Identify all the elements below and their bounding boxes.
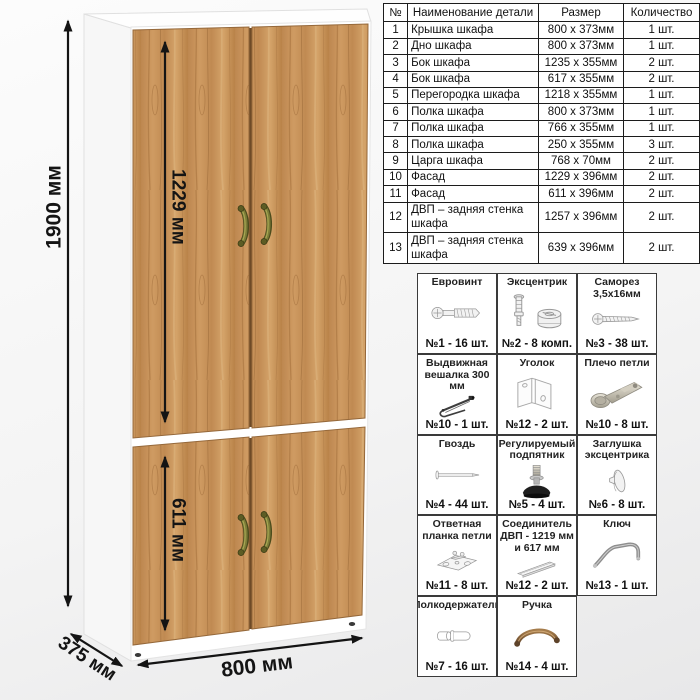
part-num: 1 (384, 22, 408, 38)
side-panel (84, 14, 131, 661)
part-name: Фасад (408, 186, 539, 202)
part-size: 800 х 373мм (538, 104, 623, 120)
table-row: 5Перегородка шкафа1218 х 355мм1 шт. (384, 87, 700, 103)
parts-table: № Наименование детали Размер Количество … (383, 3, 700, 264)
part-name: Бок шкафа (408, 71, 539, 87)
cam-lock-icon (501, 293, 573, 333)
hardware-cell-hinge-arm: Плечо петли №10 - 8 шт. (577, 354, 657, 435)
part-size: 1257 х 396мм (538, 202, 623, 233)
part-qty: 2 шт. (624, 169, 700, 185)
shelf-pin-icon (421, 624, 493, 648)
euro-screw-icon (421, 298, 493, 328)
hardware-qty: №12 - 2 шт. (506, 580, 569, 595)
hardware-qty: №10 - 8 шт. (586, 419, 649, 434)
nail-icon (421, 464, 493, 486)
part-size: 639 х 396мм (538, 233, 623, 264)
hardware-name: Регулируемый подпятник (497, 436, 577, 463)
part-qty: 1 шт. (624, 120, 700, 136)
part-num: 8 (384, 137, 408, 153)
hardware-cell-samorez: Саморез 3,5х16мм №3 - 38 шт. (577, 273, 657, 354)
part-name: Перегородка шкафа (408, 87, 539, 103)
table-row: 4Бок шкафа617 х 355мм2 шт. (384, 71, 700, 87)
hardware-qty: №5 - 4 шт. (509, 499, 565, 514)
part-num: 11 (384, 186, 408, 202)
part-num: 5 (384, 87, 408, 103)
part-size: 766 х 355мм (538, 120, 623, 136)
table-row: 2Дно шкафа800 х 373мм1 шт. (384, 38, 700, 54)
hardware-cell-shelf-pin: Полкодержатель №7 - 16 шт. (417, 596, 497, 677)
parts-table-header-row: № Наименование детали Размер Количество (384, 4, 700, 22)
hardware-name: Ручка (520, 597, 554, 612)
hardware-cell-eurovint: Евровинт №1 - 16 шт. (417, 273, 497, 354)
part-num: 9 (384, 153, 408, 169)
hardware-name: Плечо петли (582, 355, 651, 370)
hardware-cell-handle: Ручка №14 - 4 шт. (497, 596, 577, 677)
hardware-qty: №14 - 4 шт. (506, 661, 569, 676)
part-qty: 2 шт. (624, 55, 700, 71)
hardware-name: Полкодержатель (417, 597, 497, 612)
part-qty: 1 шт. (624, 104, 700, 120)
hardware-grid: Евровинт №1 - 16 шт. Эксцентрик (417, 273, 659, 677)
hardware-name: Выдвижная вешалка 300 мм (418, 355, 496, 393)
hardware-cell-excentric: Эксцентрик №2 - 8 комп. (497, 273, 577, 354)
col-header-size: Размер (538, 4, 623, 22)
assembly-sheet: 1900 мм 1229 мм 611 мм 800 мм 375 мм № Н… (0, 0, 700, 700)
hardware-qty: №7 - 16 шт. (426, 661, 489, 676)
hardware-qty: №4 - 44 шт. (426, 499, 489, 514)
hardware-qty: №11 - 8 шт. (426, 580, 488, 595)
part-name: ДВП – задняя стенка шкафа (408, 233, 539, 264)
hex-key-icon (581, 538, 653, 574)
part-name: Бок шкафа (408, 55, 539, 71)
part-name: Полка шкафа (408, 104, 539, 120)
front-left-foot (135, 653, 141, 657)
part-num: 3 (384, 55, 408, 71)
hinge-plate-icon (421, 545, 493, 579)
part-num: 13 (384, 233, 408, 264)
hinge-arm-icon (581, 375, 653, 413)
hardware-name: Саморез 3,5х16мм (578, 274, 656, 301)
col-header-qty: Количество (624, 4, 700, 22)
part-num: 7 (384, 120, 408, 136)
upper-left-door (133, 27, 249, 438)
self-tapping-screw-icon (581, 306, 653, 332)
table-row: 11Фасад611 х 396мм2 шт. (384, 186, 700, 202)
part-qty: 3 шт. (624, 137, 700, 153)
width-dimension-label: 800 мм (220, 650, 294, 682)
hardware-name: Гвоздь (437, 436, 478, 451)
part-qty: 1 шт. (624, 38, 700, 54)
table-row: 7Полка шкафа766 х 355мм1 шт. (384, 120, 700, 136)
lower-dimension-label: 611 мм (168, 498, 189, 562)
table-row: 3Бок шкафа1235 х 355мм2 шт. (384, 55, 700, 71)
part-size: 768 х 70мм (538, 153, 623, 169)
part-qty: 1 шт. (624, 87, 700, 103)
hardware-qty: №12 - 2 шт. (506, 419, 569, 434)
part-size: 617 х 355мм (538, 71, 623, 87)
part-qty: 2 шт. (624, 186, 700, 202)
hardware-cell-nail: Гвоздь №4 - 44 шт. (417, 435, 497, 516)
table-row: 8Полка шкафа250 х 355мм3 шт. (384, 137, 700, 153)
part-size: 1218 х 355мм (538, 87, 623, 103)
hardware-name: Ключ (601, 516, 633, 531)
table-row: 10Фасад1229 х 396мм2 шт. (384, 169, 700, 185)
front-right-foot (349, 622, 355, 626)
col-header-num: № (384, 4, 408, 22)
adjustable-foot-icon (501, 463, 573, 499)
part-qty: 2 шт. (624, 202, 700, 233)
table-row: 12ДВП – задняя стенка шкафа1257 х 396мм2… (384, 202, 700, 233)
hardware-name: Соединитель ДВП - 1219 мм и 617 мм (498, 516, 576, 554)
part-size: 250 х 355мм (538, 137, 623, 153)
part-size: 1235 х 355мм (538, 55, 623, 71)
part-qty: 1 шт. (624, 22, 700, 38)
hardware-cell-foot: Регулируемый подпятник №5 - 4 шт. (497, 435, 577, 516)
part-num: 10 (384, 169, 408, 185)
hardware-qty: №3 - 38 шт. (586, 338, 649, 353)
part-name: Крышка шкафа (408, 22, 539, 38)
part-size: 611 х 396мм (538, 186, 623, 202)
table-row: 1Крышка шкафа800 х 373мм1 шт. (384, 22, 700, 38)
table-row: 9Царга шкафа768 х 70мм2 шт. (384, 153, 700, 169)
hardware-cell-connector: Соединитель ДВП - 1219 мм и 617 мм №12 -… (497, 515, 577, 596)
part-size: 800 х 373мм (538, 38, 623, 54)
part-size: 800 х 373мм (538, 22, 623, 38)
cam-cover-icon (581, 463, 653, 499)
table-row: 6Полка шкафа800 х 373мм1 шт. (384, 104, 700, 120)
hardware-name: Эксцентрик (505, 274, 569, 289)
wardrobe-drawing: 1900 мм 1229 мм 611 мм 800 мм 375 мм (0, 0, 410, 700)
part-qty: 2 шт. (624, 233, 700, 264)
lower-left-door (133, 437, 249, 645)
height-dimension-label: 1900 мм (43, 165, 66, 249)
part-name: Дно шкафа (408, 38, 539, 54)
part-name: Полка шкафа (408, 120, 539, 136)
table-row: 13ДВП – задняя стенка шкафа639 х 396мм2 … (384, 233, 700, 264)
handle-icon (501, 617, 573, 655)
hardware-name: Заглушка эксцентрика (578, 436, 656, 463)
part-name: Полка шкафа (408, 137, 539, 153)
hardware-qty: №1 - 16 шт. (426, 338, 489, 353)
part-name: Фасад (408, 169, 539, 185)
part-qty: 2 шт. (624, 71, 700, 87)
part-num: 6 (384, 104, 408, 120)
pullout-hanger-icon (421, 393, 493, 419)
corner-bracket-icon (501, 374, 573, 414)
hardware-cell-hinge-plate: Ответная планка петли №11 - 8 шт. (417, 515, 497, 596)
part-num: 12 (384, 202, 408, 233)
upper-dimension-label: 1229 мм (168, 169, 189, 245)
hardware-cell-hanger: Выдвижная вешалка 300 мм №10 - 1 шт. (417, 354, 497, 435)
hardware-cell-key: Ключ №13 - 1 шт. (577, 515, 657, 596)
part-num: 4 (384, 71, 408, 87)
hardware-name: Евровинт (430, 274, 485, 289)
part-qty: 2 шт. (624, 153, 700, 169)
hardware-qty: №6 - 8 шт. (589, 499, 645, 514)
hdf-connector-icon (501, 555, 573, 581)
part-num: 2 (384, 38, 408, 54)
hardware-qty: №10 - 1 шт. (426, 419, 489, 434)
hardware-cell-cam-cover: Заглушка эксцентрика №6 - 8 шт. (577, 435, 657, 516)
hardware-qty: №2 - 8 комп. (502, 338, 572, 353)
hardware-qty: №13 - 1 шт. (586, 580, 649, 595)
hardware-cell-ugolok: Уголок №12 - 2 шт. (497, 354, 577, 435)
hardware-name: Ответная планка петли (418, 516, 496, 543)
col-header-name: Наименование детали (408, 4, 539, 22)
part-name: Царга шкафа (408, 153, 539, 169)
part-name: ДВП – задняя стенка шкафа (408, 202, 539, 233)
part-size: 1229 х 396мм (538, 169, 623, 185)
hardware-name: Уголок (518, 355, 557, 370)
